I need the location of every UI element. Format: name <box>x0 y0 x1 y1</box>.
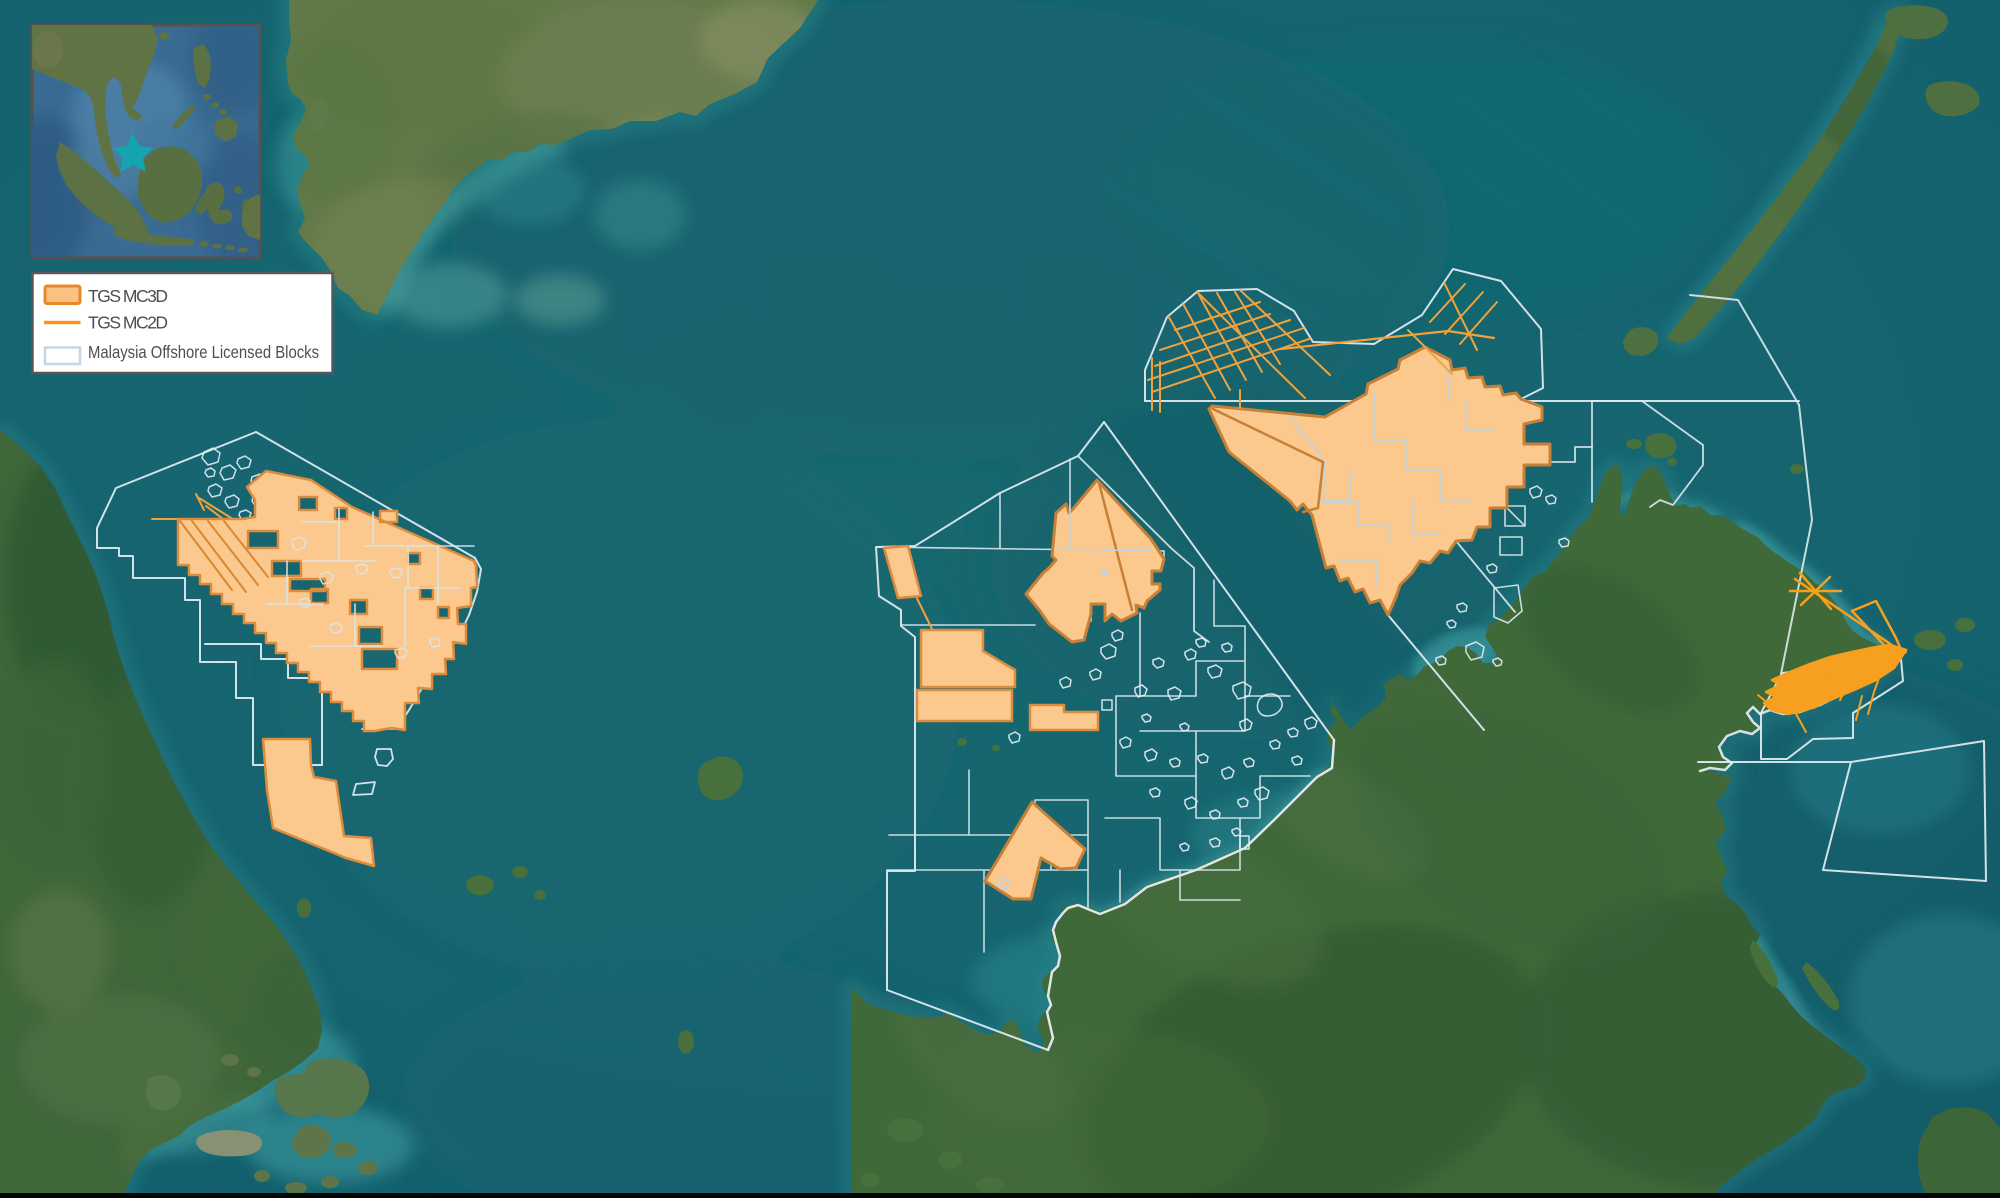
svg-text:Malaysia Offshore Licensed Blo: Malaysia Offshore Licensed Blocks <box>88 342 319 362</box>
svg-text:TGS MC2D: TGS MC2D <box>88 313 168 333</box>
svg-text:TGS MC3D: TGS MC3D <box>88 286 168 306</box>
